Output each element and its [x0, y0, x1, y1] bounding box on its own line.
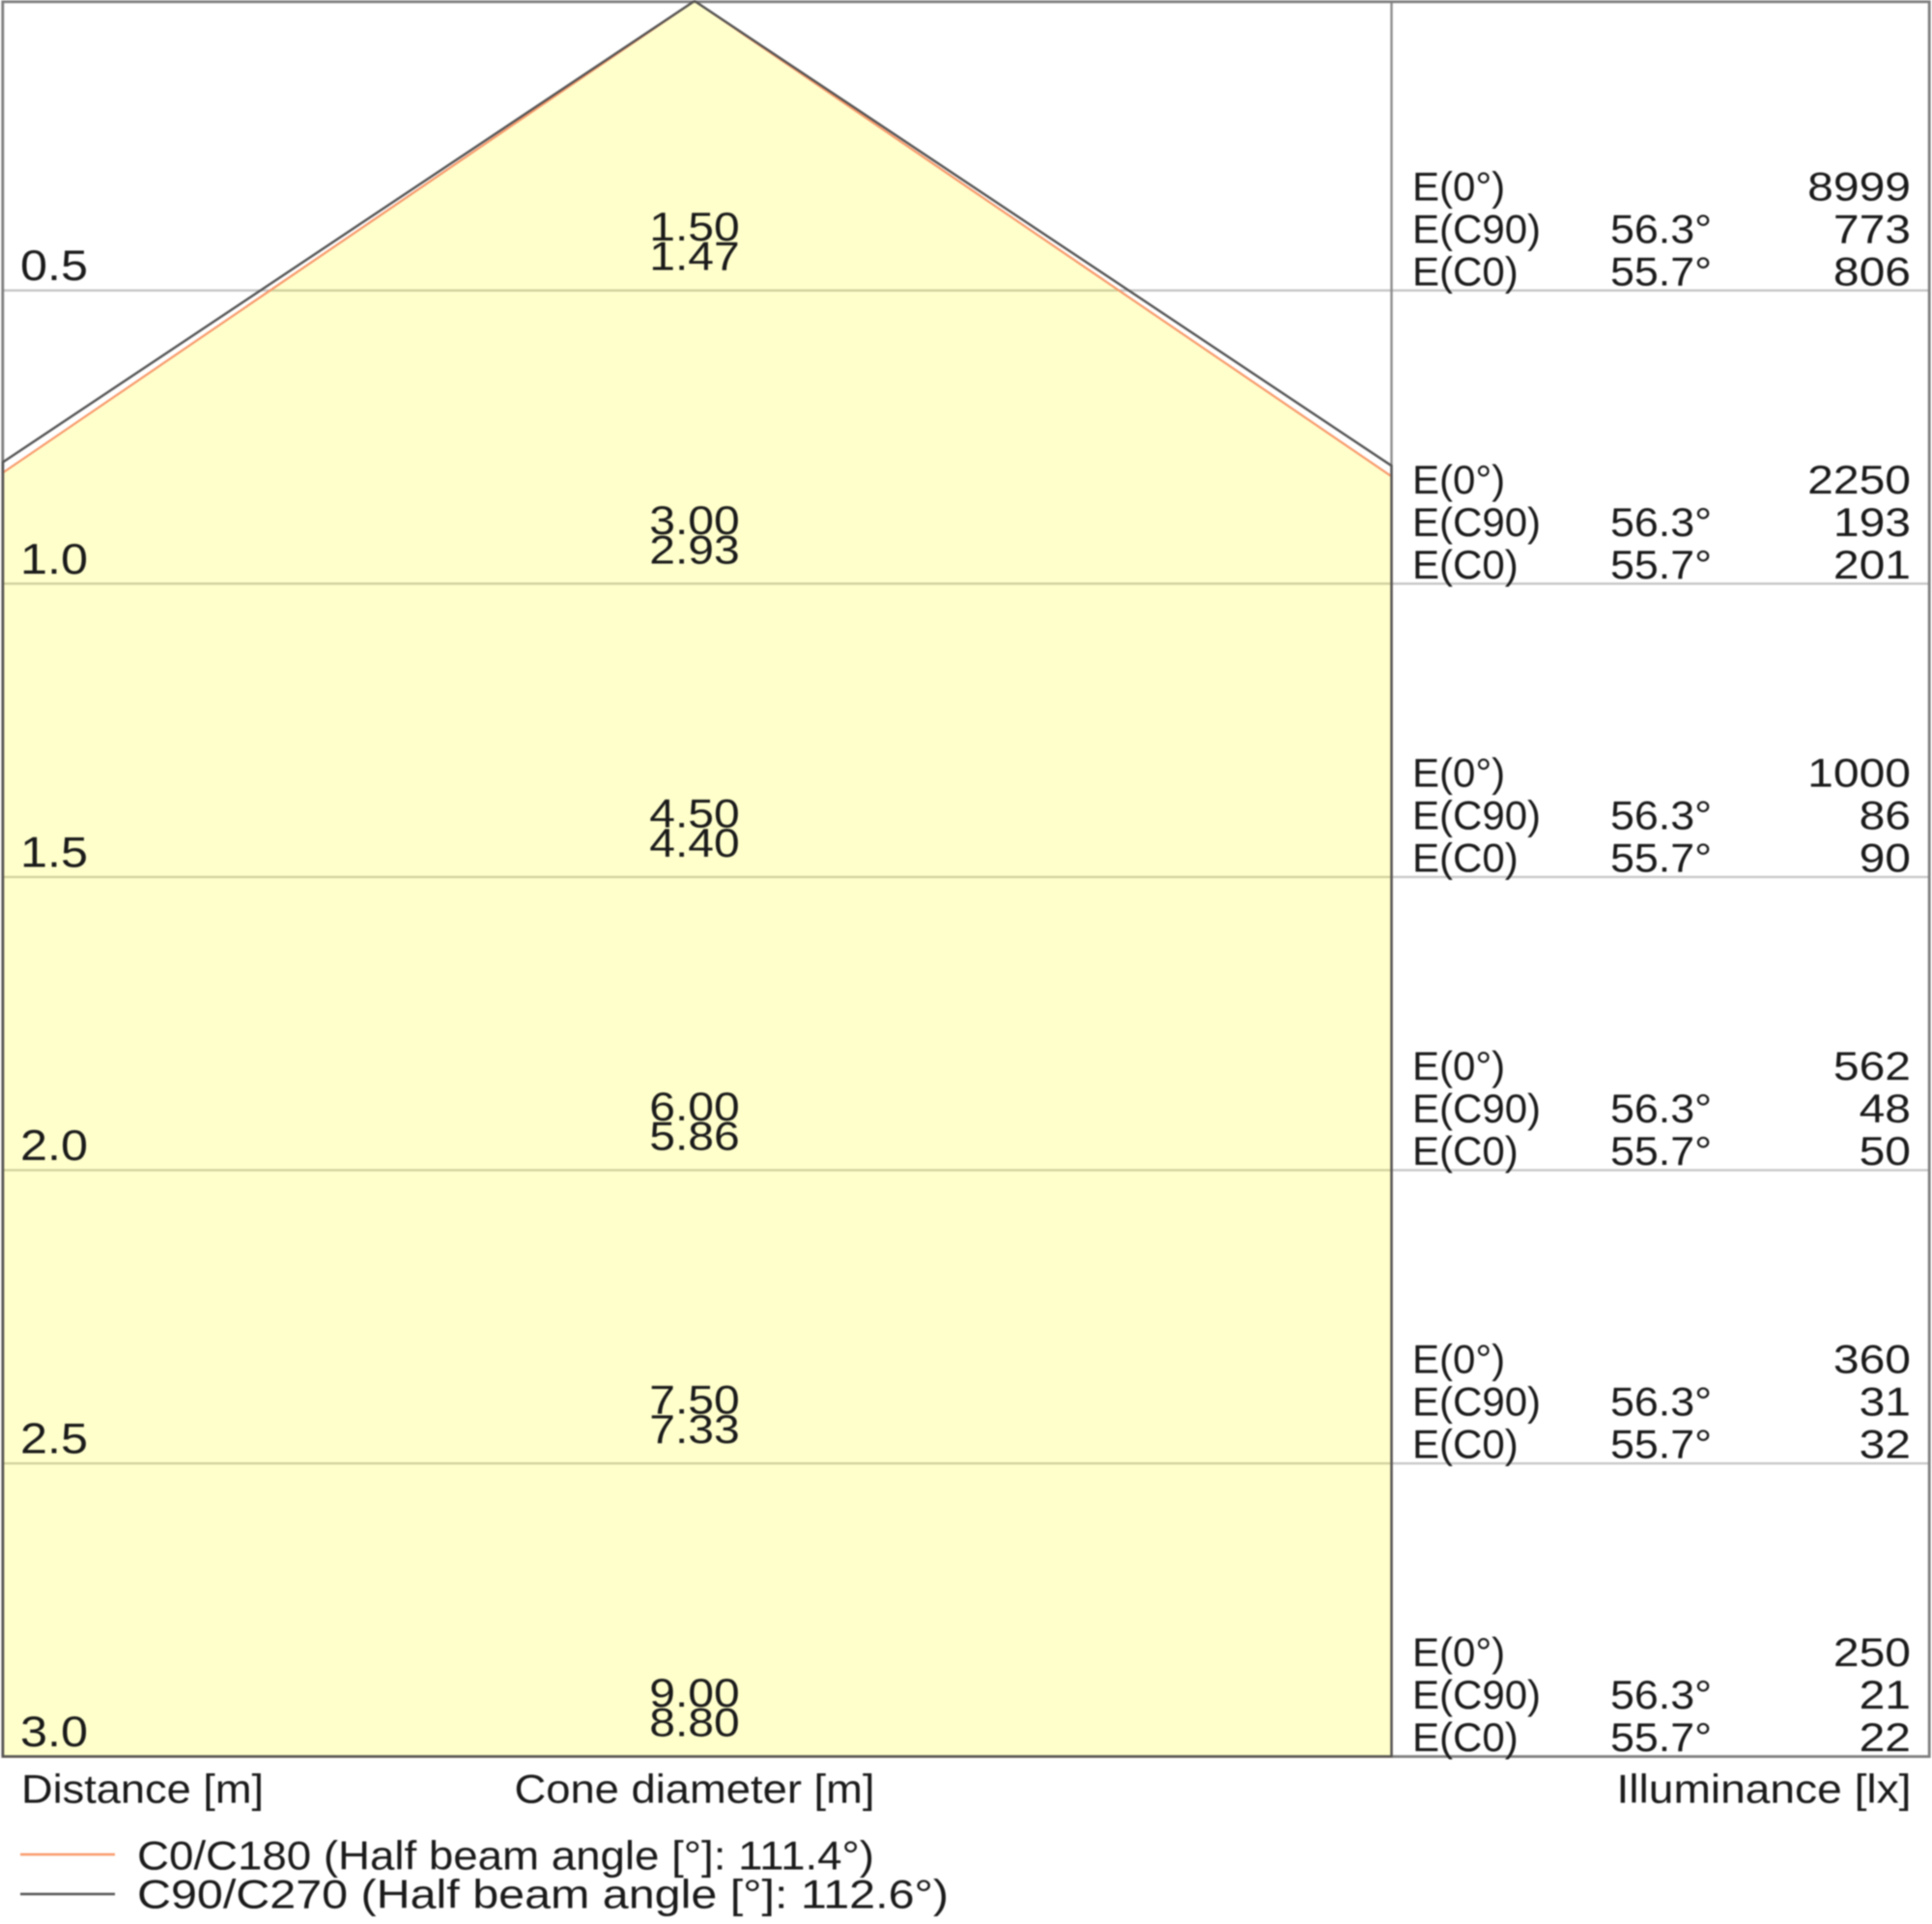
svg-text:1.0: 1.0	[20, 536, 88, 583]
svg-text:E(C0): E(C0)	[1412, 1422, 1519, 1467]
svg-text:E(C0): E(C0)	[1412, 1714, 1519, 1760]
svg-text:1.47: 1.47	[649, 234, 740, 279]
svg-text:E(C0): E(C0)	[1412, 248, 1519, 294]
svg-text:562: 562	[1833, 1043, 1911, 1089]
svg-text:E(C90): E(C90)	[1412, 793, 1541, 838]
svg-text:56.3°: 56.3°	[1610, 793, 1712, 838]
svg-text:50: 50	[1860, 1128, 1911, 1174]
svg-text:56.3°: 56.3°	[1610, 1672, 1712, 1717]
svg-text:201: 201	[1833, 542, 1911, 587]
svg-text:8.80: 8.80	[649, 1700, 740, 1745]
svg-text:31: 31	[1860, 1379, 1911, 1425]
svg-text:7.33: 7.33	[649, 1406, 740, 1452]
svg-text:E(C0): E(C0)	[1412, 835, 1519, 881]
svg-text:E(C0): E(C0)	[1412, 542, 1519, 587]
svg-text:21: 21	[1860, 1672, 1911, 1717]
svg-text:55.7°: 55.7°	[1610, 1128, 1712, 1174]
svg-text:E(C0): E(C0)	[1412, 1128, 1519, 1174]
svg-text:8999: 8999	[1807, 163, 1911, 209]
svg-text:48: 48	[1860, 1086, 1911, 1131]
svg-text:56.3°: 56.3°	[1610, 206, 1712, 251]
svg-text:Illuminance [lx]: Illuminance [lx]	[1617, 1767, 1912, 1812]
svg-text:55.7°: 55.7°	[1610, 835, 1712, 881]
svg-text:56.3°: 56.3°	[1610, 1379, 1712, 1425]
svg-text:55.7°: 55.7°	[1610, 1714, 1712, 1760]
svg-text:E(0°): E(0°)	[1412, 1043, 1505, 1089]
svg-text:2250: 2250	[1807, 457, 1911, 502]
svg-text:Cone diameter [m]: Cone diameter [m]	[515, 1767, 875, 1812]
svg-text:E(0°): E(0°)	[1412, 1629, 1505, 1675]
svg-text:193: 193	[1833, 499, 1911, 545]
svg-text:4.40: 4.40	[649, 820, 740, 865]
svg-text:55.7°: 55.7°	[1610, 1422, 1712, 1467]
svg-text:2.93: 2.93	[649, 526, 740, 572]
svg-text:1000: 1000	[1807, 750, 1911, 796]
svg-text:32: 32	[1860, 1422, 1911, 1467]
svg-text:250: 250	[1833, 1629, 1911, 1675]
svg-text:3.0: 3.0	[20, 1709, 88, 1756]
svg-text:E(0°): E(0°)	[1412, 1337, 1505, 1382]
svg-text:Distance [m]: Distance [m]	[21, 1767, 264, 1812]
svg-text:C90/C270 (Half beam angle [°]:: C90/C270 (Half beam angle [°]: 112.6°)	[137, 1872, 949, 1917]
svg-text:55.7°: 55.7°	[1610, 248, 1712, 294]
svg-text:E(C90): E(C90)	[1412, 1379, 1541, 1425]
svg-text:2.0: 2.0	[20, 1122, 88, 1170]
svg-text:1.5: 1.5	[20, 830, 88, 877]
svg-text:86: 86	[1860, 793, 1911, 838]
svg-text:E(0°): E(0°)	[1412, 750, 1505, 796]
svg-text:360: 360	[1833, 1337, 1911, 1382]
svg-text:90: 90	[1860, 835, 1911, 881]
svg-text:2.5: 2.5	[20, 1416, 88, 1463]
svg-text:E(0°): E(0°)	[1412, 163, 1505, 209]
svg-text:0.5: 0.5	[20, 242, 88, 290]
svg-text:E(C90): E(C90)	[1412, 206, 1541, 251]
svg-text:E(C90): E(C90)	[1412, 499, 1541, 545]
svg-text:E(0°): E(0°)	[1412, 457, 1505, 502]
svg-text:22: 22	[1860, 1714, 1911, 1760]
svg-text:55.7°: 55.7°	[1610, 542, 1712, 587]
svg-text:806: 806	[1833, 248, 1911, 294]
svg-text:56.3°: 56.3°	[1610, 1086, 1712, 1131]
svg-text:773: 773	[1833, 206, 1911, 251]
svg-text:5.86: 5.86	[649, 1114, 740, 1159]
svg-text:56.3°: 56.3°	[1610, 499, 1712, 545]
svg-text:E(C90): E(C90)	[1412, 1672, 1541, 1717]
svg-text:E(C90): E(C90)	[1412, 1086, 1541, 1131]
